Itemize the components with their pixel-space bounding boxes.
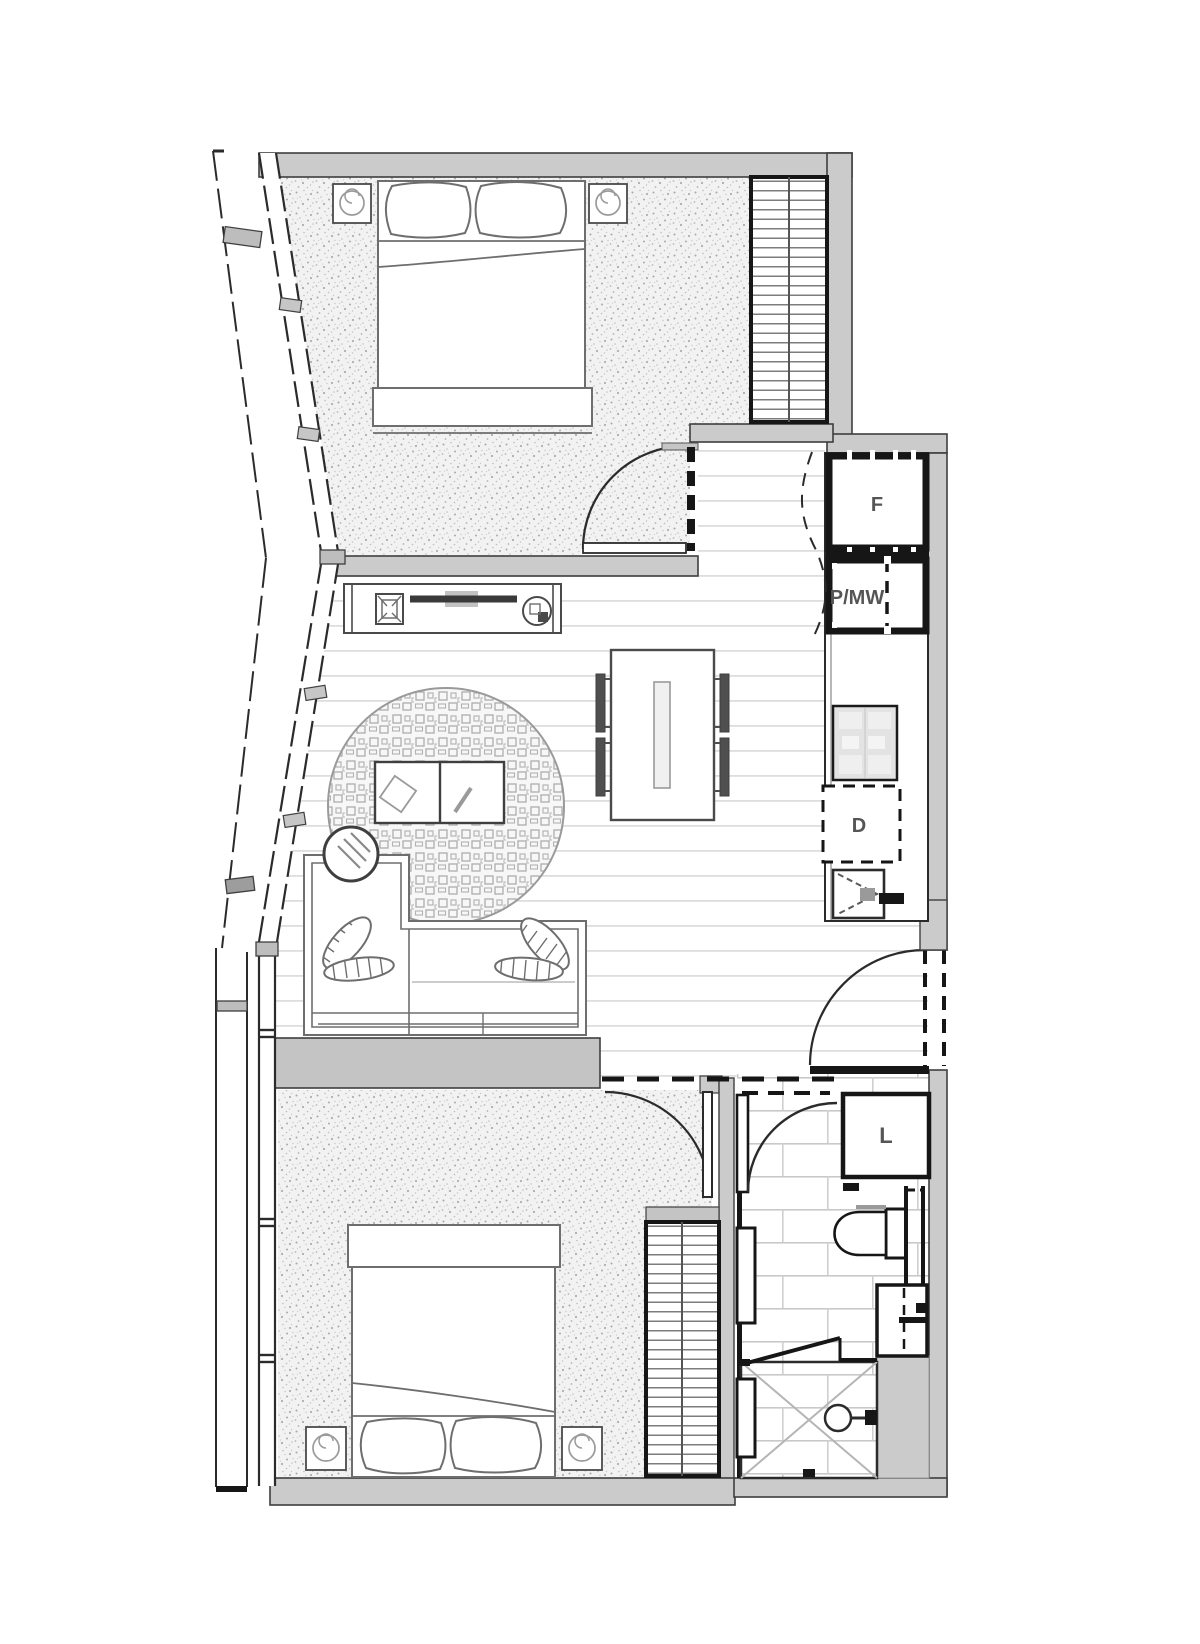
- svg-text:L: L: [879, 1123, 892, 1148]
- svg-text:P/MW: P/MW: [830, 587, 885, 609]
- svg-text:D: D: [852, 815, 866, 837]
- svg-text:F: F: [871, 494, 883, 516]
